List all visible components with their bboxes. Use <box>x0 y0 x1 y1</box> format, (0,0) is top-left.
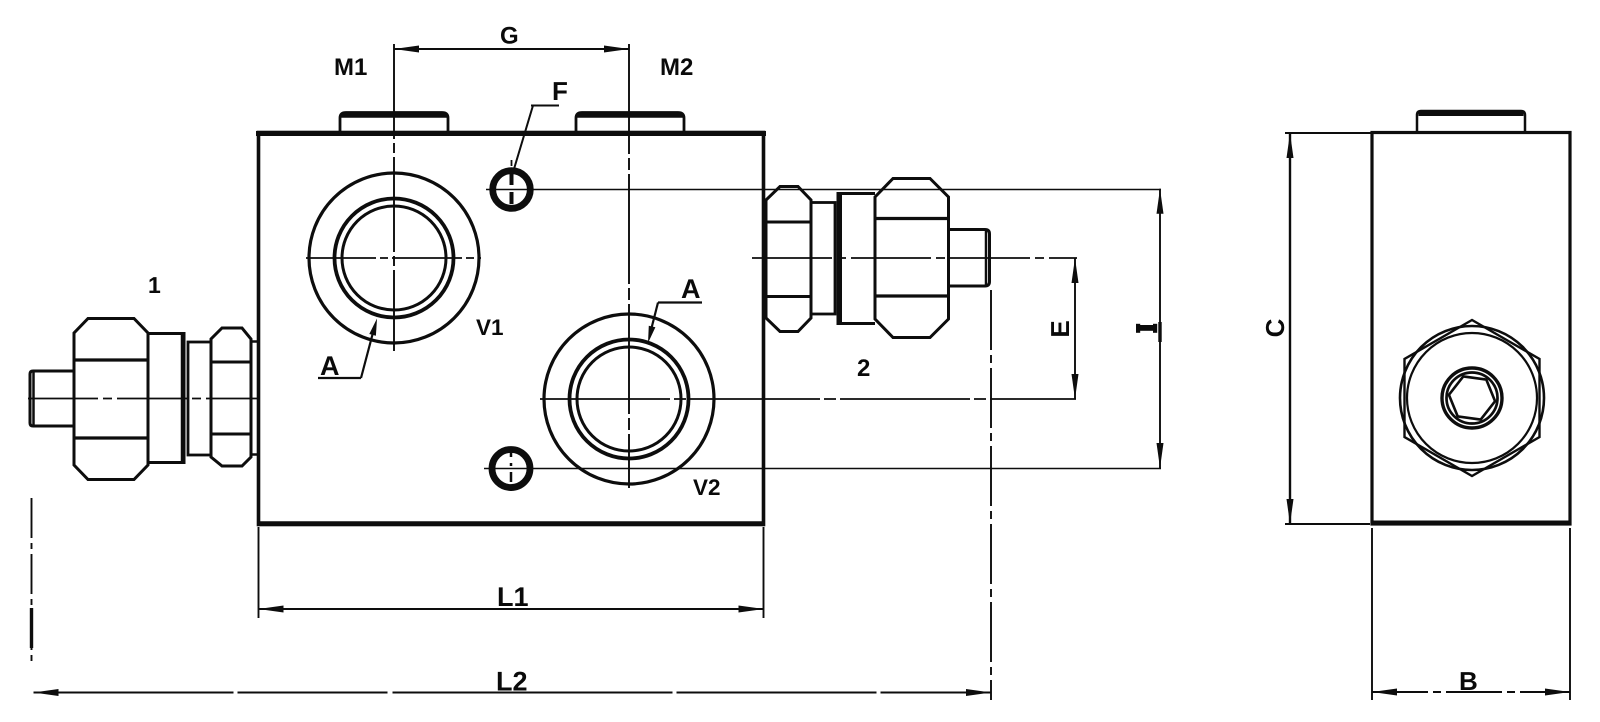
svg-text:B: B <box>1459 666 1478 696</box>
svg-text:C: C <box>1260 318 1290 337</box>
svg-text:M2: M2 <box>660 54 693 81</box>
svg-text:M1: M1 <box>334 54 367 81</box>
svg-text:A: A <box>320 351 340 381</box>
svg-text:2: 2 <box>857 355 870 382</box>
svg-text:A: A <box>681 274 701 304</box>
svg-text:F: F <box>552 76 568 106</box>
svg-text:G: G <box>500 23 519 50</box>
svg-text:L1: L1 <box>497 582 529 612</box>
svg-text:E: E <box>1045 320 1075 337</box>
svg-text:L2: L2 <box>496 667 528 697</box>
svg-text:V2: V2 <box>693 475 721 500</box>
svg-text:V1: V1 <box>476 315 504 340</box>
svg-text:1: 1 <box>148 272 161 298</box>
